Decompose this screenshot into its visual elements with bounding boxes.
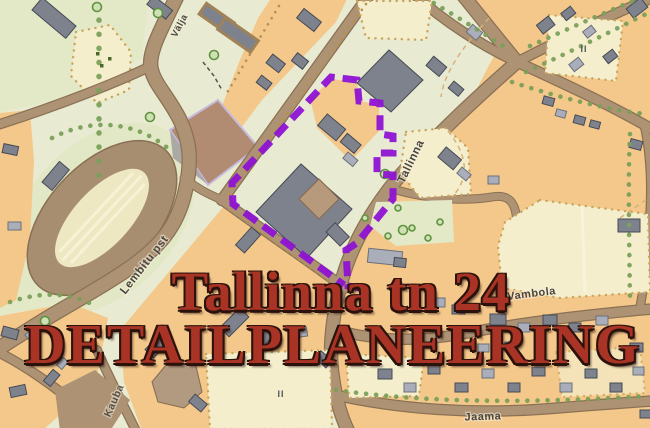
building (585, 369, 597, 378)
building (610, 383, 622, 392)
tree-icon (385, 233, 391, 239)
map-symbol: II (277, 389, 284, 399)
building (505, 342, 517, 351)
bush-icon (100, 64, 104, 68)
building (404, 383, 416, 392)
map-viewport: Välja Tallinna Lembitu pst Kauba Vambola… (0, 0, 650, 428)
building (294, 327, 308, 338)
building (532, 367, 545, 376)
parcel (206, 350, 332, 428)
building (596, 316, 608, 325)
tree-icon (154, 9, 163, 18)
tree-icon (93, 3, 102, 12)
building (640, 410, 650, 418)
street-label-jaama: Jaama (464, 410, 502, 423)
building (478, 344, 489, 352)
base-map: Välja Tallinna Lembitu pst Kauba Vambola… (0, 0, 650, 428)
building (490, 314, 506, 325)
building (630, 343, 643, 352)
bush-icon (108, 57, 112, 61)
building (394, 257, 407, 267)
building (569, 323, 581, 332)
building (633, 367, 644, 375)
building (452, 305, 465, 314)
tree-icon (395, 205, 401, 211)
tree-icon (437, 219, 443, 225)
building (482, 369, 494, 378)
building (488, 176, 499, 184)
building (432, 298, 445, 307)
building (543, 315, 557, 325)
bush-icon (96, 52, 100, 56)
tree-icon (425, 235, 431, 241)
map-symbol: II (580, 44, 587, 54)
tree-icon (399, 226, 408, 235)
tree-icon (409, 225, 415, 231)
building (378, 369, 392, 379)
building (518, 323, 530, 332)
building (428, 365, 440, 374)
tree-icon (210, 51, 219, 60)
tree-icon (146, 113, 155, 122)
building (455, 383, 468, 392)
building (560, 383, 572, 392)
building (508, 383, 520, 392)
building (8, 222, 21, 230)
tree-icon (362, 215, 368, 221)
parcel (357, 1, 432, 40)
tree-icon (41, 317, 50, 326)
